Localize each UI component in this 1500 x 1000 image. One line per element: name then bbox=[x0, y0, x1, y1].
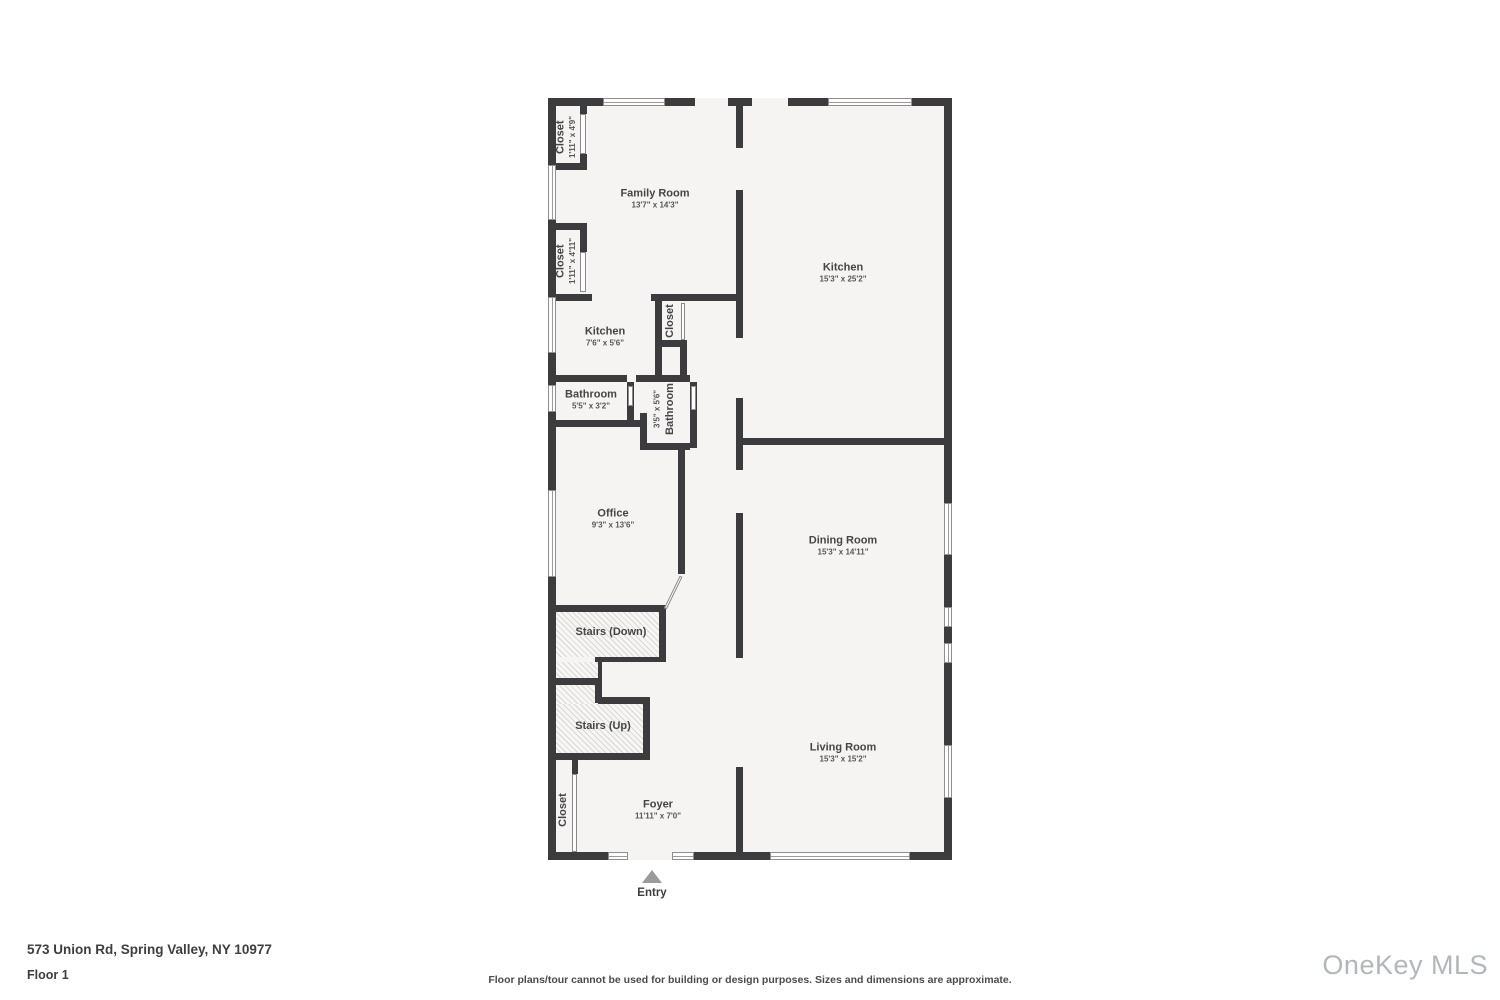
disclaimer-text: Floor plans/tour cannot be used for buil… bbox=[488, 974, 1011, 986]
wall bbox=[736, 513, 743, 658]
wall-opening bbox=[752, 98, 788, 106]
room-name: Bathroom bbox=[565, 388, 617, 402]
window bbox=[548, 165, 556, 220]
room-dimensions: 5'5" x 3'2" bbox=[565, 402, 617, 412]
room-name: Bathroom bbox=[663, 383, 677, 435]
label-bathroom-1: Bathroom5'5" x 3'2" bbox=[565, 388, 617, 413]
label-office: Office9'3" x 13'6" bbox=[592, 507, 635, 532]
label-family-room: Family Room13'7" x 14'3" bbox=[620, 187, 689, 212]
window bbox=[548, 385, 556, 412]
door bbox=[664, 576, 682, 610]
label-closet-center: Closet bbox=[663, 304, 677, 338]
window bbox=[548, 297, 556, 353]
door bbox=[572, 774, 577, 852]
window bbox=[944, 643, 952, 663]
wall bbox=[651, 294, 743, 301]
room-name: Foyer bbox=[635, 798, 681, 812]
window bbox=[944, 607, 952, 627]
wall bbox=[678, 450, 685, 574]
wall bbox=[680, 347, 687, 378]
wall bbox=[736, 767, 743, 852]
entry-arrow-icon bbox=[642, 870, 662, 883]
window bbox=[944, 503, 952, 555]
wall bbox=[548, 678, 598, 685]
stairs-hatch bbox=[556, 685, 595, 704]
wall bbox=[740, 438, 944, 445]
room-dimensions: 15'3" x 25'2" bbox=[820, 275, 867, 285]
floor-plan: Entry Family Room13'7" x 14'3"Kitchen15'… bbox=[548, 98, 952, 860]
window bbox=[828, 98, 912, 106]
label-bathroom-2: 3'5" x 5'6"Bathroom bbox=[653, 383, 678, 435]
room-name: Closet bbox=[554, 238, 568, 284]
wall bbox=[643, 697, 650, 760]
wall-opening bbox=[628, 852, 672, 860]
door bbox=[628, 386, 633, 406]
wall bbox=[572, 758, 578, 774]
label-stairs-up: Stairs (Up) bbox=[575, 719, 631, 733]
room-dimensions: 7'6" x 5'6" bbox=[585, 339, 625, 349]
wall bbox=[736, 106, 743, 148]
room-dimensions: 3'5" x 5'6" bbox=[653, 383, 663, 435]
wall bbox=[736, 398, 743, 470]
room-name: Dining Room bbox=[809, 534, 877, 548]
brand-logo: OneKey MLS bbox=[1322, 950, 1488, 981]
room-name: Stairs (Down) bbox=[576, 625, 647, 639]
window bbox=[603, 98, 665, 106]
window bbox=[770, 852, 910, 860]
wall bbox=[662, 340, 687, 347]
door bbox=[580, 114, 586, 154]
label-living-room: Living Room15'3" x 15'2" bbox=[810, 741, 877, 766]
wall bbox=[580, 98, 587, 114]
door bbox=[691, 386, 696, 410]
label-closet-bottom-left: Closet bbox=[556, 793, 570, 827]
window bbox=[608, 852, 628, 860]
room-dimensions: 11'11" x 7'0" bbox=[635, 812, 681, 822]
wall bbox=[580, 154, 587, 170]
wall bbox=[640, 413, 647, 450]
label-closet-mid-left: Closet1'11" x 4'11" bbox=[554, 238, 579, 284]
label-stairs-down: Stairs (Down) bbox=[576, 625, 647, 639]
entry-label: Entry bbox=[637, 887, 666, 899]
room-name: Closet bbox=[556, 793, 570, 827]
window bbox=[944, 745, 952, 798]
room-name: Kitchen bbox=[820, 261, 867, 275]
label-foyer: Foyer11'11" x 7'0" bbox=[635, 798, 681, 823]
room-name: Stairs (Up) bbox=[575, 719, 631, 733]
room-name: Office bbox=[592, 507, 635, 521]
room-dimensions: 9'3" x 13'6" bbox=[592, 521, 635, 531]
label-closet-top-left: Closet1'11" x 4'9" bbox=[554, 116, 579, 158]
stairs-hatch bbox=[556, 662, 598, 678]
room-dimensions: 1'11" x 4'9" bbox=[568, 116, 578, 158]
wall bbox=[548, 605, 666, 612]
wall bbox=[736, 190, 743, 338]
wall bbox=[580, 223, 587, 252]
door bbox=[580, 252, 586, 292]
floor-number-text: Floor 1 bbox=[27, 968, 69, 982]
room-dimensions: 1'11" x 4'11" bbox=[568, 238, 578, 284]
wall bbox=[636, 375, 690, 382]
room-name: Closet bbox=[554, 116, 568, 158]
address-text: 573 Union Rd, Spring Valley, NY 10977 bbox=[27, 942, 272, 957]
page: { "floorplan": { "wall_color": "#3c3c3e"… bbox=[0, 0, 1500, 1000]
window bbox=[672, 852, 694, 860]
room-name: Living Room bbox=[810, 741, 877, 755]
wall bbox=[548, 420, 647, 427]
room-name: Family Room bbox=[620, 187, 689, 201]
room-name: Closet bbox=[663, 304, 677, 338]
wall bbox=[659, 605, 666, 662]
window bbox=[548, 490, 556, 577]
wall bbox=[548, 753, 650, 760]
wall bbox=[548, 375, 627, 382]
label-dining-room: Dining Room15'3" x 14'11" bbox=[809, 534, 877, 559]
room-name: Kitchen bbox=[585, 325, 625, 339]
label-kitchen: Kitchen15'3" x 25'2" bbox=[820, 261, 867, 286]
room-dimensions: 15'3" x 15'2" bbox=[810, 755, 877, 765]
wall bbox=[647, 443, 690, 450]
wall bbox=[655, 301, 662, 380]
room-dimensions: 13'7" x 14'3" bbox=[620, 201, 689, 211]
wall-opening bbox=[695, 98, 728, 106]
label-kitchen-2: Kitchen7'6" x 5'6" bbox=[585, 325, 625, 350]
door bbox=[681, 303, 685, 340]
room-dimensions: 15'3" x 14'11" bbox=[809, 548, 877, 558]
